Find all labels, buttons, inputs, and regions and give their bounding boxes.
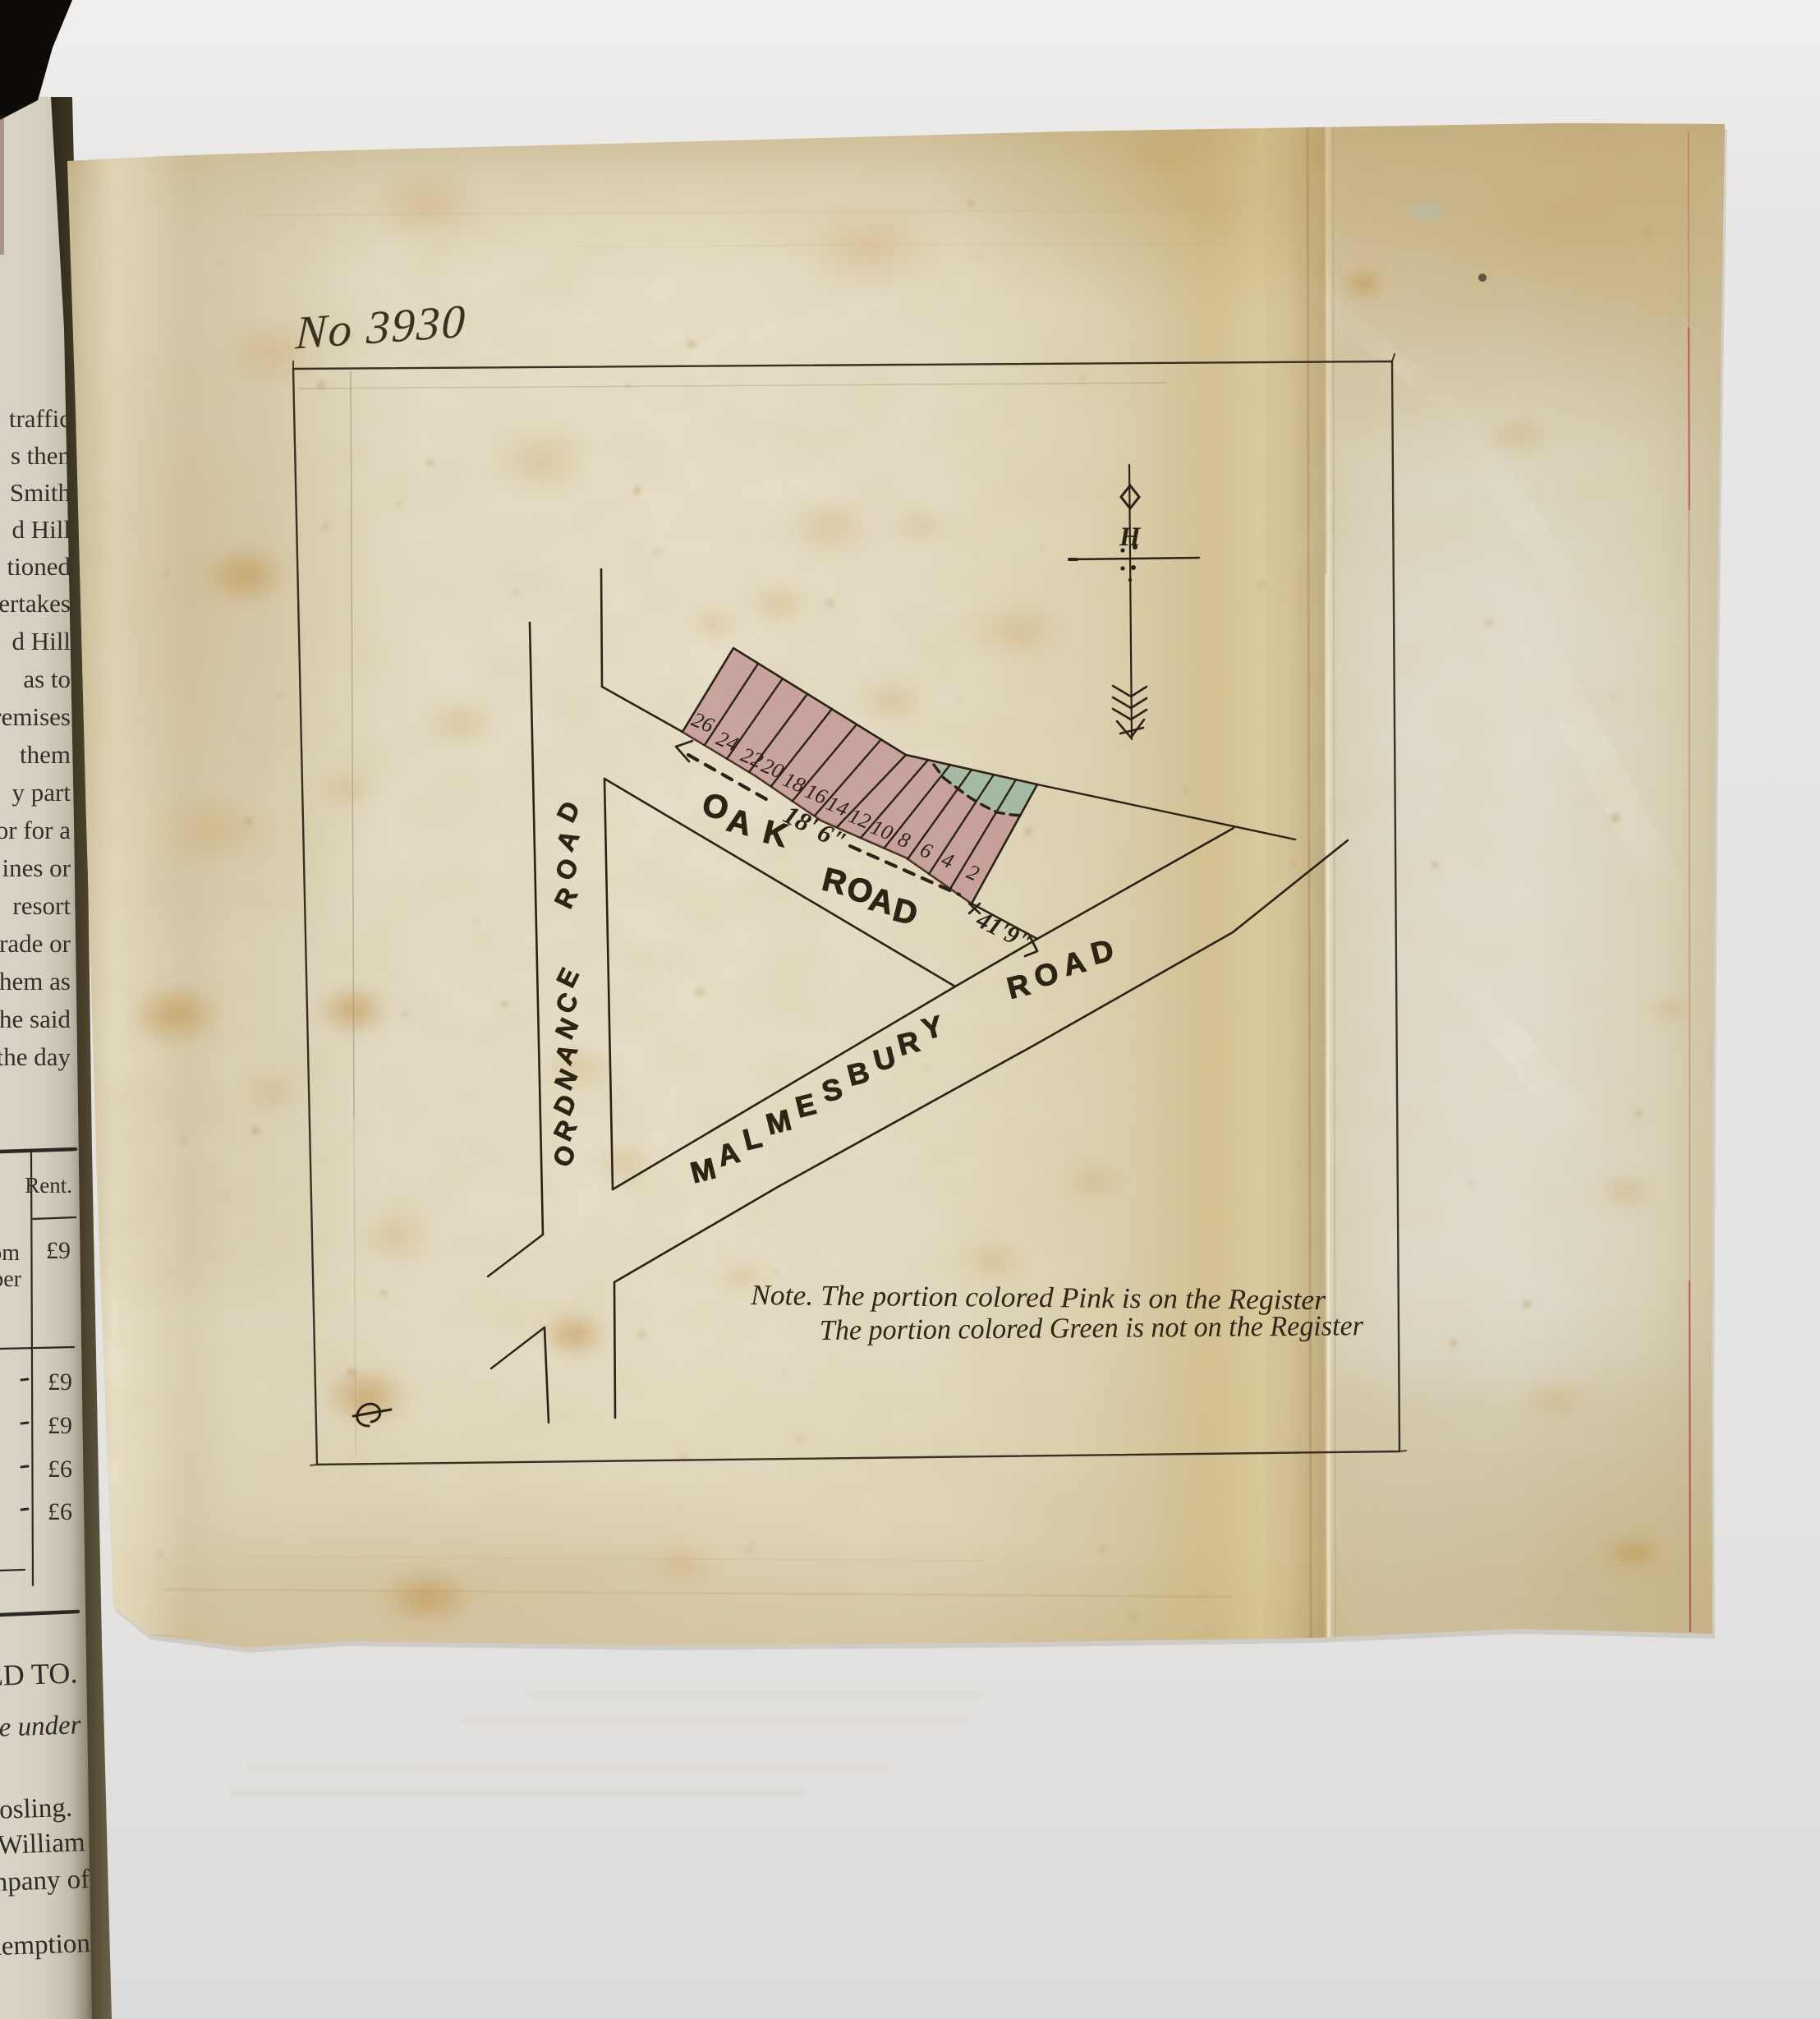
svg-text:edemption: edemption	[0, 1929, 90, 1962]
svg-text:d Hill: d Hill	[12, 515, 71, 544]
svg-text:tioned: tioned	[7, 552, 71, 581]
svg-text:or for a: or for a	[0, 816, 71, 844]
svg-text:£6: £6	[48, 1456, 72, 1483]
svg-text:he said: he said	[0, 1005, 71, 1033]
svg-text:them: them	[20, 740, 71, 769]
svg-text:as to: as to	[23, 665, 71, 693]
svg-text:£9: £9	[46, 1237, 71, 1264]
svg-text:n William: n William	[0, 1828, 85, 1861]
svg-text:om: om	[0, 1240, 20, 1266]
svg-text:Gosling.: Gosling.	[0, 1793, 73, 1826]
svg-text:d Hill: d Hill	[12, 627, 71, 655]
svg-text:RED TO.: RED TO.	[0, 1656, 78, 1693]
svg-text:remises: remises	[0, 702, 71, 731]
svg-text:ines or: ines or	[2, 853, 71, 882]
svg-text:£9: £9	[48, 1368, 72, 1396]
svg-text:itle under: itle under	[0, 1710, 81, 1743]
svg-text:£6: £6	[48, 1498, 72, 1525]
svg-text:hem as: hem as	[0, 967, 71, 996]
svg-text:The portion colored Green is n: The portion colored Green is not on the …	[820, 1309, 1364, 1346]
svg-text:y part: y part	[12, 778, 71, 807]
svg-text:ertakes: ertakes	[0, 589, 71, 618]
svg-text:£9: £9	[48, 1412, 72, 1439]
svg-text:ompany of: ompany of	[0, 1865, 90, 1898]
svg-text:Smith: Smith	[10, 478, 71, 507]
svg-text:resort: resort	[12, 891, 71, 920]
svg-text:traffic: traffic	[9, 404, 71, 433]
svg-text:rade or: rade or	[0, 929, 71, 958]
svg-text:s then: s then	[11, 441, 71, 470]
svg-text:the day: the day	[0, 1042, 71, 1071]
svg-text:H: H	[1119, 522, 1142, 552]
svg-text:per: per	[0, 1267, 22, 1292]
